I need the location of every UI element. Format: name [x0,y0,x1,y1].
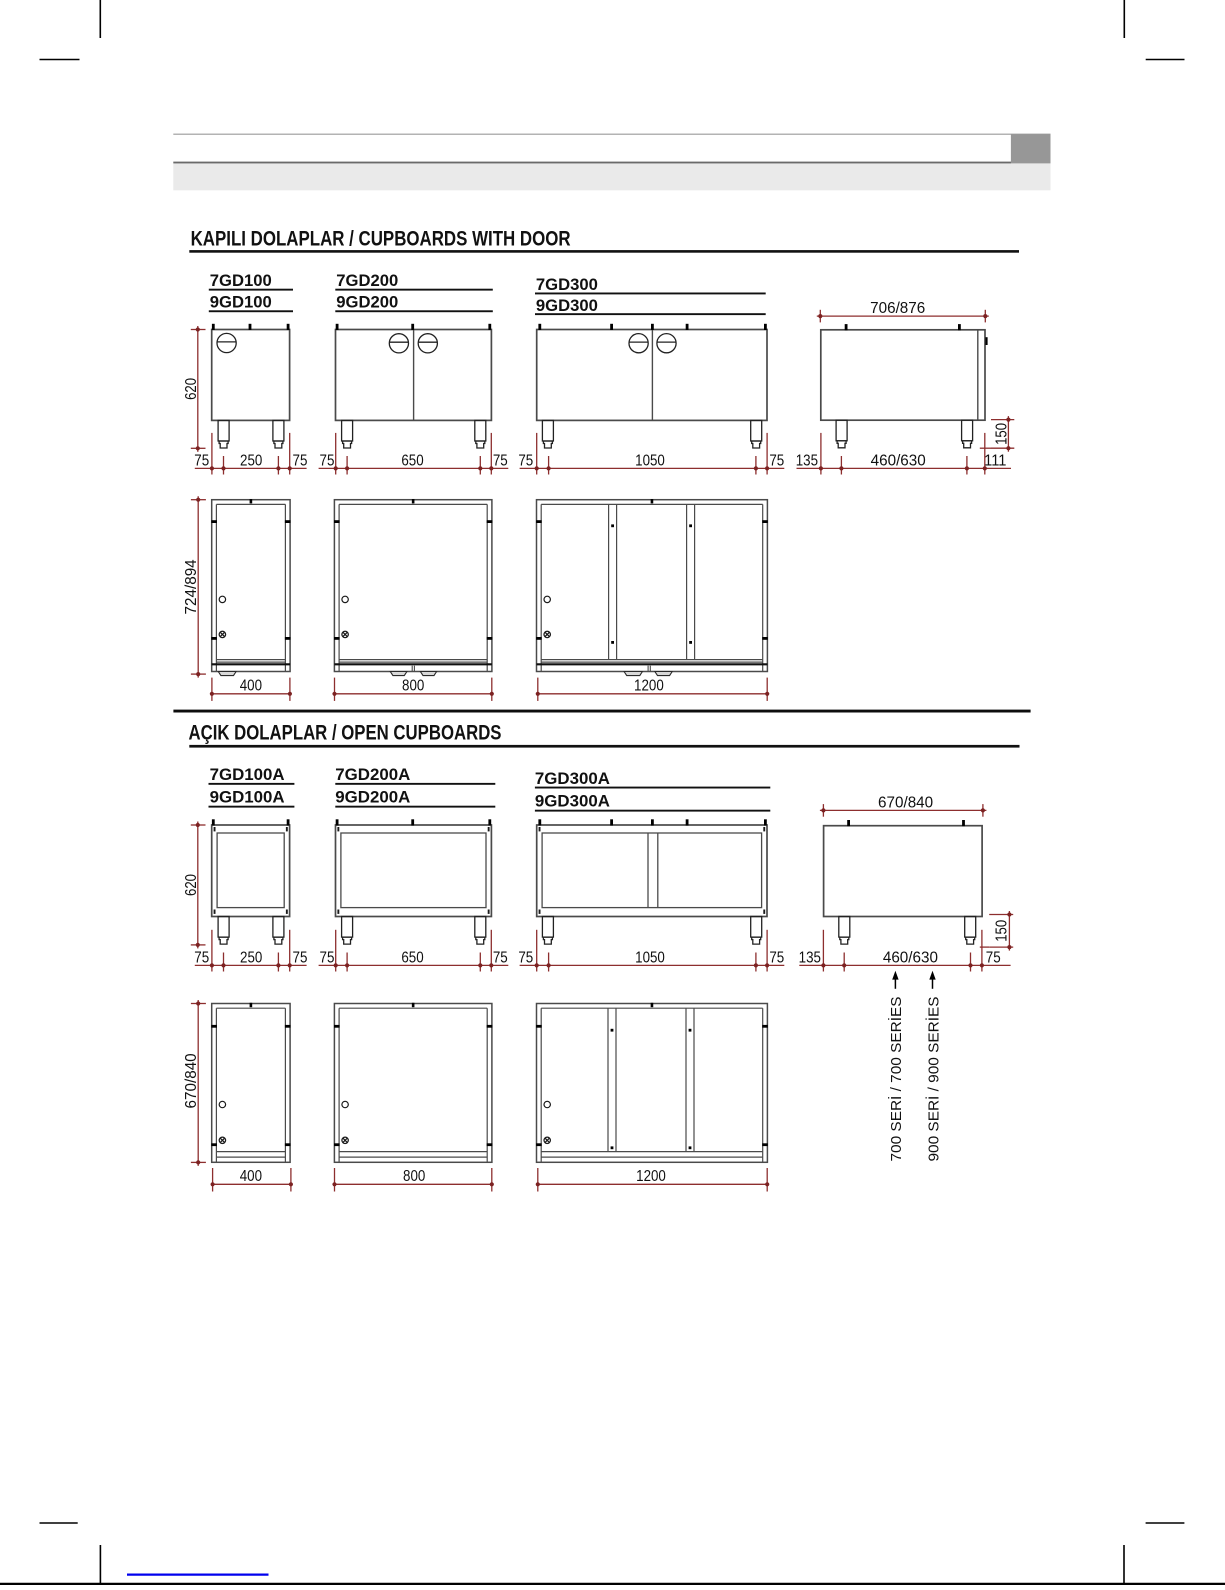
svg-text:7GD300: 7GD300 [536,276,598,294]
svg-text:800: 800 [402,677,424,694]
svg-text:724/894: 724/894 [183,559,200,614]
svg-text:75: 75 [293,949,308,966]
svg-text:9GD100A: 9GD100A [210,788,285,806]
svg-text:7GD300A: 7GD300A [535,770,610,788]
svg-text:75: 75 [493,453,508,470]
svg-text:670/840: 670/840 [878,794,933,811]
svg-text:400: 400 [240,677,262,694]
svg-text:400: 400 [240,1168,262,1185]
svg-text:9GD300A: 9GD300A [535,793,610,811]
svg-text:9GD300: 9GD300 [536,297,598,315]
svg-text:9GD200: 9GD200 [336,294,398,312]
svg-text:7GD100A: 7GD100A [210,766,285,784]
svg-text:135: 135 [799,949,821,966]
svg-text:111: 111 [984,453,1006,470]
svg-text:700 SERİ / 700 SERİES: 700 SERİ / 700 SERİES [887,997,905,1162]
svg-text:75: 75 [320,949,335,966]
svg-text:9GD200A: 9GD200A [335,788,410,806]
svg-text:706/876: 706/876 [870,300,925,317]
svg-text:75: 75 [769,453,784,470]
svg-text:135: 135 [796,453,818,470]
svg-text:75: 75 [518,453,533,470]
svg-text:7GD200: 7GD200 [336,272,398,290]
svg-text:1050: 1050 [635,453,665,470]
svg-text:7GD100: 7GD100 [210,272,272,290]
svg-text:1050: 1050 [635,949,665,966]
svg-text:150: 150 [993,423,1010,445]
svg-text:650: 650 [401,453,423,470]
svg-text:75: 75 [320,453,335,470]
svg-text:620: 620 [183,378,200,400]
svg-text:650: 650 [401,949,423,966]
svg-text:75: 75 [194,453,209,470]
svg-text:9GD100: 9GD100 [210,294,272,312]
svg-text:75: 75 [293,453,308,470]
svg-text:1200: 1200 [636,1168,666,1185]
svg-text:150: 150 [994,920,1011,942]
svg-text:75: 75 [769,949,784,966]
svg-text:800: 800 [403,1168,425,1185]
svg-text:250: 250 [240,949,262,966]
svg-text:AÇIK DOLAPLAR / OPEN CUPBOARDS: AÇIK DOLAPLAR / OPEN CUPBOARDS [189,720,502,744]
svg-text:460/630: 460/630 [883,949,938,966]
svg-text:75: 75 [518,949,533,966]
svg-text:620: 620 [183,874,200,896]
svg-text:7GD200A: 7GD200A [335,766,410,784]
svg-text:1200: 1200 [634,677,664,694]
svg-text:KAPILI DOLAPLAR / CUPBOARDS WI: KAPILI DOLAPLAR / CUPBOARDS WITH DOOR [191,226,571,250]
svg-text:75: 75 [194,949,209,966]
svg-text:670/840: 670/840 [183,1053,200,1108]
svg-text:460/630: 460/630 [871,453,926,470]
svg-text:900 SERİ / 900 SERİES: 900 SERİ / 900 SERİES [924,997,942,1162]
svg-text:250: 250 [240,453,262,470]
svg-text:75: 75 [986,949,1001,966]
svg-text:75: 75 [493,949,508,966]
